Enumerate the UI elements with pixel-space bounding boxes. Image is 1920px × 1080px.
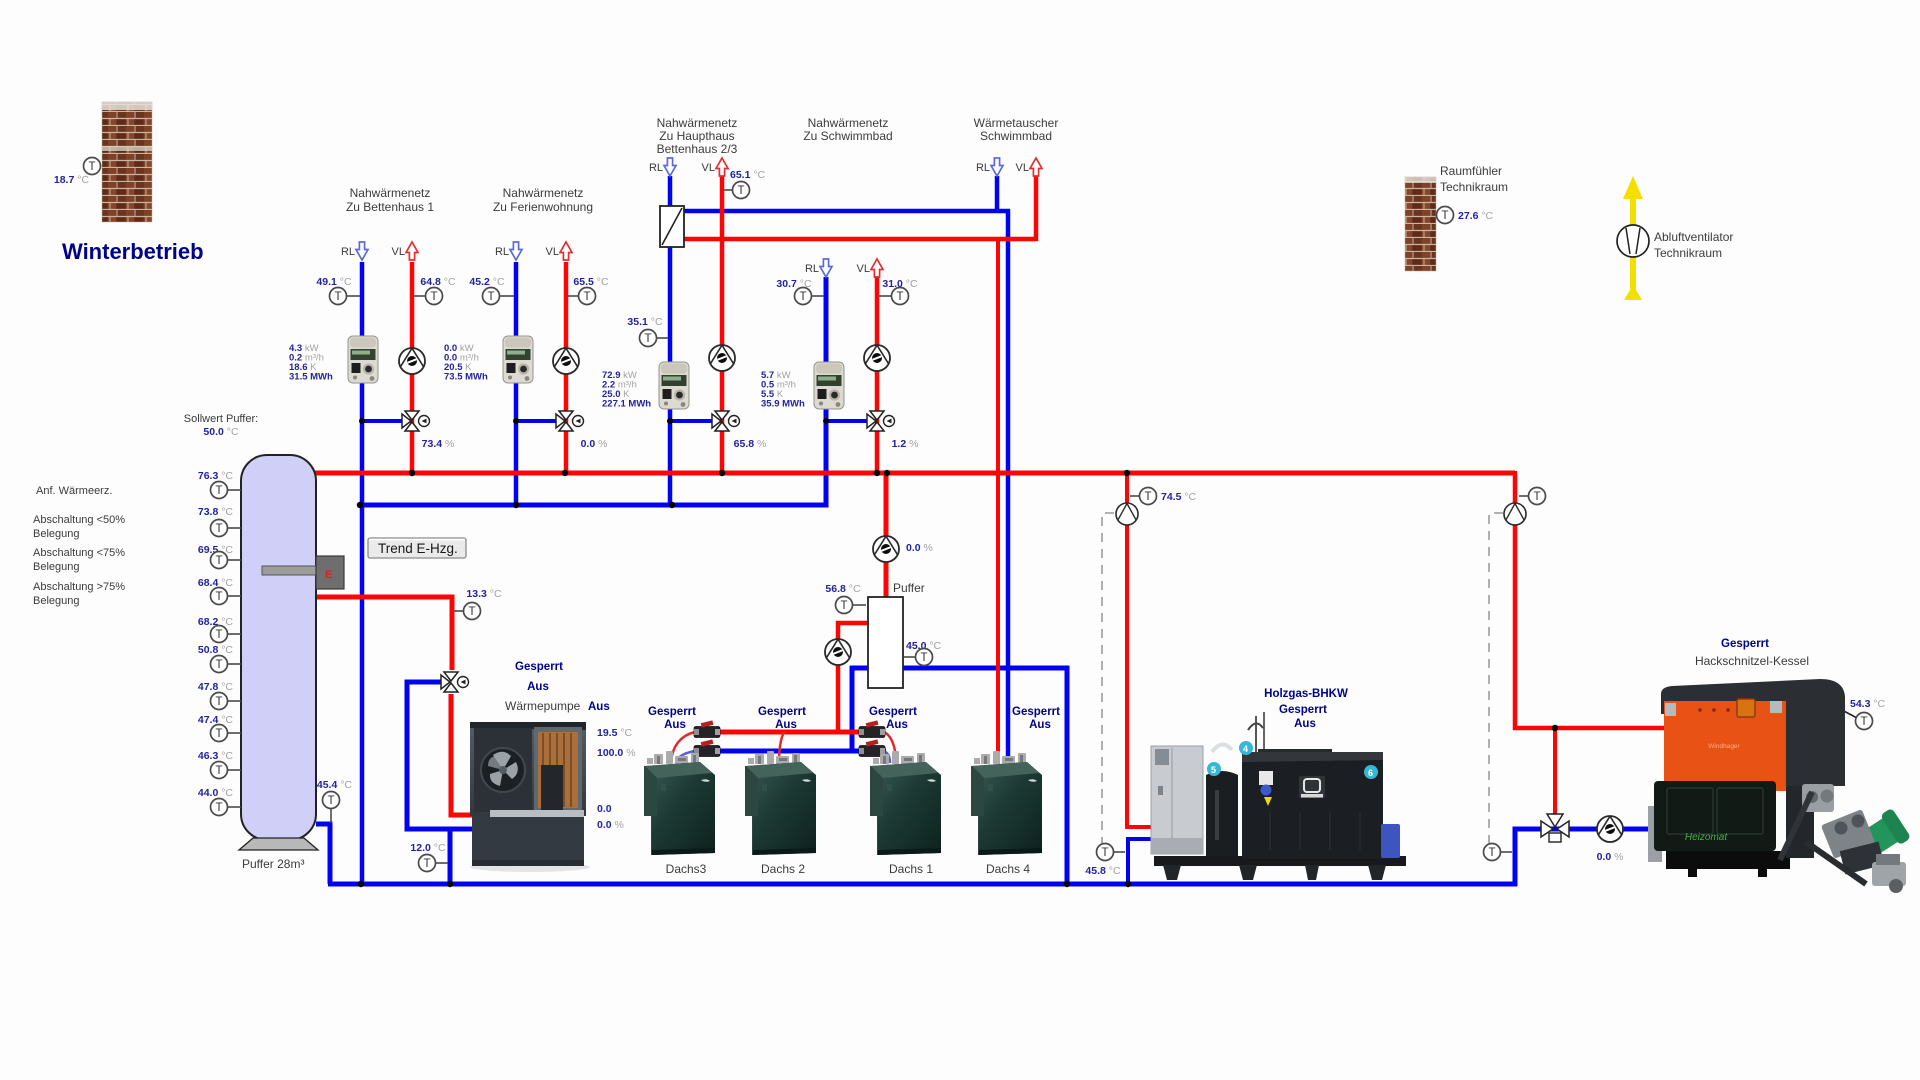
svg-text:45.8 °C: 45.8 °C (1085, 865, 1121, 877)
svg-text:Puffer: Puffer (893, 581, 925, 595)
svg-text:0.0: 0.0 (597, 803, 612, 815)
svg-text:VL: VL (702, 162, 715, 174)
svg-text:65.5 °C: 65.5 °C (573, 276, 609, 288)
svg-text:64.8 °C: 64.8 °C (420, 276, 456, 288)
svg-text:100.0 %: 100.0 % (597, 747, 636, 759)
svg-text:Nahwärmenetz: Nahwärmenetz (503, 186, 584, 200)
svg-text:Winterbetrieb: Winterbetrieb (62, 239, 204, 264)
svg-text:Gesperrt: Gesperrt (1279, 704, 1327, 716)
svg-text:35.1 °C: 35.1 °C (627, 316, 663, 328)
svg-text:Raumfühler: Raumfühler (1440, 164, 1502, 178)
svg-text:Dachs 2: Dachs 2 (761, 862, 805, 876)
svg-text:0.0 %: 0.0 % (597, 819, 624, 831)
svg-text:44.0 °C: 44.0 °C (198, 787, 234, 799)
svg-text:Holzgas-BHKW: Holzgas-BHKW (1264, 688, 1348, 700)
svg-text:Nahwärmenetz: Nahwärmenetz (808, 116, 889, 130)
svg-text:45.2 °C: 45.2 °C (469, 276, 505, 288)
svg-text:Dachs 4: Dachs 4 (986, 862, 1030, 876)
svg-text:Zu Haupthaus: Zu Haupthaus (659, 129, 734, 143)
svg-text:Dachs 1: Dachs 1 (889, 862, 933, 876)
svg-text:Gesperrt: Gesperrt (648, 706, 696, 718)
svg-text:Aus: Aus (886, 719, 908, 731)
svg-text:50.0 °C: 50.0 °C (203, 426, 239, 438)
svg-text:Aus: Aus (1294, 718, 1316, 730)
svg-text:5: 5 (1211, 765, 1216, 775)
svg-text:Dachs3: Dachs3 (666, 862, 707, 876)
svg-text:Zu Ferienwohnung: Zu Ferienwohnung (493, 200, 593, 214)
svg-text:74.5 °C: 74.5 °C (1161, 491, 1197, 503)
svg-text:Trend E-Hzg.: Trend E-Hzg. (378, 541, 458, 556)
svg-text:0.0 %: 0.0 % (1597, 851, 1624, 863)
svg-text:65.8 %: 65.8 % (734, 438, 767, 450)
svg-text:RL: RL (341, 246, 355, 258)
svg-text:Zu Schwimmbad: Zu Schwimmbad (803, 129, 892, 143)
svg-text:47.8 °C: 47.8 °C (198, 681, 234, 693)
svg-text:49.1 °C: 49.1 °C (316, 276, 352, 288)
svg-text:Belegung: Belegung (33, 528, 80, 540)
svg-text:Abluftventilator: Abluftventilator (1654, 230, 1733, 244)
svg-text:56.8 °C: 56.8 °C (825, 583, 861, 595)
svg-text:12.0 °C: 12.0 °C (410, 842, 446, 854)
svg-text:27.6 °C: 27.6 °C (1458, 210, 1494, 222)
svg-text:Technikraum: Technikraum (1440, 180, 1508, 194)
svg-text:46.3 °C: 46.3 °C (198, 750, 234, 762)
svg-text:4: 4 (1243, 744, 1248, 754)
svg-text:1.2 %: 1.2 % (892, 438, 919, 450)
svg-text:Hackschnitzel-Kessel: Hackschnitzel-Kessel (1695, 654, 1809, 668)
svg-text:76.3 °C: 76.3 °C (198, 470, 234, 482)
svg-text:227.1 MWh: 227.1 MWh (602, 399, 651, 410)
svg-text:Zu Bettenhaus 1: Zu Bettenhaus 1 (346, 200, 434, 214)
svg-text:Aus: Aus (588, 701, 610, 713)
svg-text:Puffer 28m³: Puffer 28m³ (242, 857, 304, 871)
svg-text:19.5 °C: 19.5 °C (597, 727, 633, 739)
svg-text:13.3 °C: 13.3 °C (466, 588, 502, 600)
svg-text:0.0 %: 0.0 % (906, 542, 933, 554)
svg-text:65.1 °C: 65.1 °C (730, 169, 766, 181)
svg-text:Bettenhaus 2/3: Bettenhaus 2/3 (657, 142, 738, 156)
svg-text:Technikraum: Technikraum (1654, 246, 1722, 260)
svg-text:RL: RL (649, 162, 663, 174)
svg-text:VL: VL (1016, 162, 1029, 174)
svg-text:VL: VL (546, 246, 559, 258)
svg-text:Abschaltung <50%: Abschaltung <50% (33, 514, 125, 526)
svg-text:RL: RL (495, 246, 509, 258)
svg-text:73.4 %: 73.4 % (422, 438, 455, 450)
svg-text:0.0 %: 0.0 % (581, 438, 608, 450)
svg-text:Aus: Aus (527, 681, 549, 693)
svg-text:73.5 MWh: 73.5 MWh (444, 372, 488, 383)
svg-text:Schwimmbad: Schwimmbad (980, 129, 1052, 143)
svg-text:Nahwärmenetz: Nahwärmenetz (350, 186, 431, 200)
svg-text:50.8 °C: 50.8 °C (198, 644, 234, 656)
svg-text:VL: VL (857, 263, 870, 275)
svg-text:RL: RL (805, 263, 819, 275)
svg-text:18.7 °C: 18.7 °C (54, 174, 90, 186)
svg-text:Gesperrt: Gesperrt (515, 661, 563, 673)
svg-text:Aus: Aus (664, 719, 686, 731)
svg-text:Abschaltung <75%: Abschaltung <75% (33, 547, 125, 559)
svg-text:Sollwert Puffer:: Sollwert Puffer: (184, 413, 258, 425)
svg-text:Gesperrt: Gesperrt (758, 706, 806, 718)
svg-text:Aus: Aus (1029, 719, 1051, 731)
svg-text:Belegung: Belegung (33, 595, 80, 607)
svg-text:VL: VL (392, 246, 405, 258)
svg-text:Windhager: Windhager (1708, 743, 1740, 750)
svg-text:47.4 °C: 47.4 °C (198, 714, 234, 726)
svg-text:E: E (325, 569, 332, 581)
svg-text:68.4 °C: 68.4 °C (198, 577, 234, 589)
svg-text:Wärmetauscher: Wärmetauscher (974, 116, 1059, 130)
svg-text:RL: RL (976, 162, 990, 174)
svg-text:73.8 °C: 73.8 °C (198, 506, 234, 518)
svg-text:Nahwärmenetz: Nahwärmenetz (657, 116, 738, 130)
svg-text:Gesperrt: Gesperrt (869, 706, 917, 718)
svg-text:Gesperrt: Gesperrt (1721, 638, 1769, 650)
svg-text:45.4 °C: 45.4 °C (317, 779, 353, 791)
svg-text:Anf. Wärmeerz.: Anf. Wärmeerz. (36, 485, 112, 497)
svg-text:6: 6 (1368, 768, 1373, 778)
svg-text:Belegung: Belegung (33, 561, 80, 573)
svg-text:31.5 MWh: 31.5 MWh (289, 372, 333, 383)
svg-text:54.3 °C: 54.3 °C (1850, 698, 1886, 710)
svg-text:Wärmepumpe: Wärmepumpe (505, 699, 581, 713)
svg-text:Abschaltung >75%: Abschaltung >75% (33, 581, 125, 593)
svg-text:Heizomat: Heizomat (1685, 832, 1728, 843)
svg-text:Gesperrt: Gesperrt (1012, 706, 1060, 718)
svg-text:Aus: Aus (775, 719, 797, 731)
svg-text:35.9 MWh: 35.9 MWh (761, 399, 805, 410)
